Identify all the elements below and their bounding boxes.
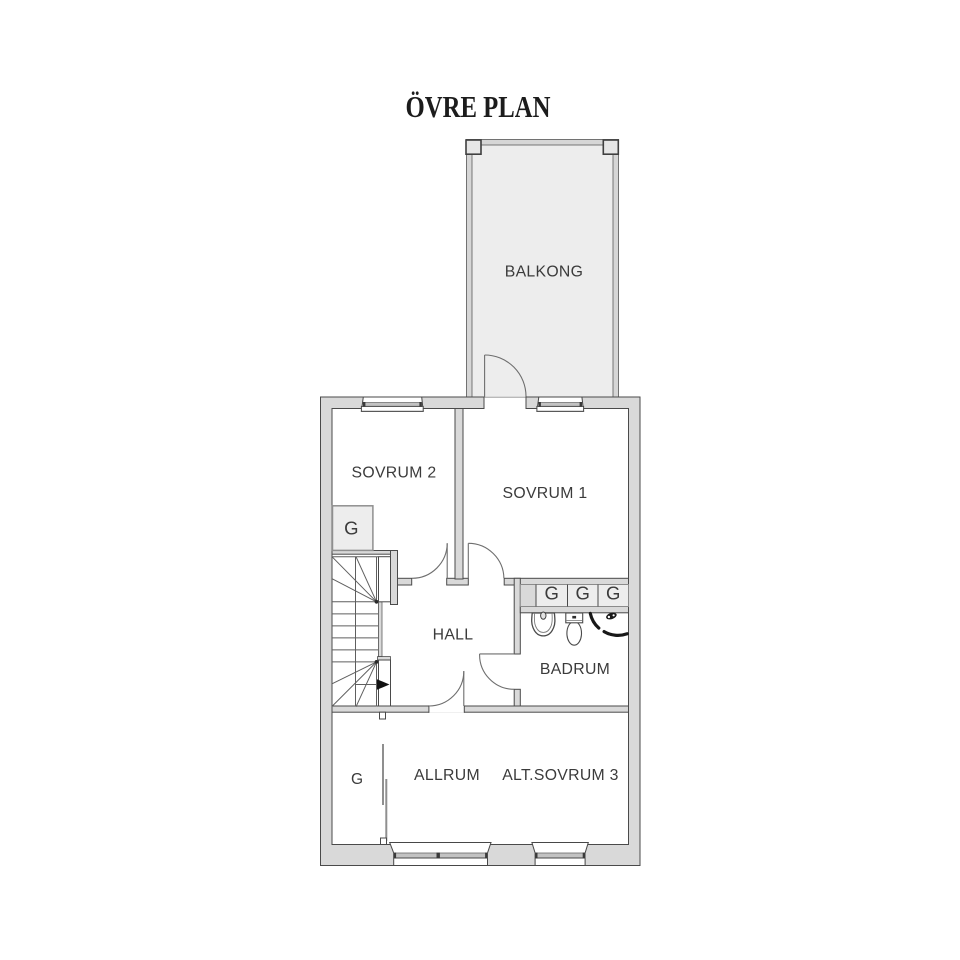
svg-text:ALLRUM: ALLRUM	[414, 767, 480, 784]
svg-text:SOVRUM 2: SOVRUM 2	[352, 465, 437, 482]
svg-text:SOVRUM 1: SOVRUM 1	[503, 485, 588, 502]
svg-text:BADRUM: BADRUM	[540, 661, 610, 678]
svg-text:ALT.SOVRUM 3: ALT.SOVRUM 3	[502, 767, 619, 784]
svg-text:G: G	[351, 771, 363, 788]
svg-text:G: G	[344, 517, 358, 538]
svg-text:G: G	[606, 582, 620, 603]
svg-text:G: G	[545, 582, 559, 603]
svg-text:ÖVRE PLAN: ÖVRE PLAN	[406, 89, 551, 124]
svg-text:G: G	[576, 582, 590, 603]
svg-text:HALL: HALL	[433, 627, 474, 644]
svg-text:BALKONG: BALKONG	[505, 264, 583, 281]
